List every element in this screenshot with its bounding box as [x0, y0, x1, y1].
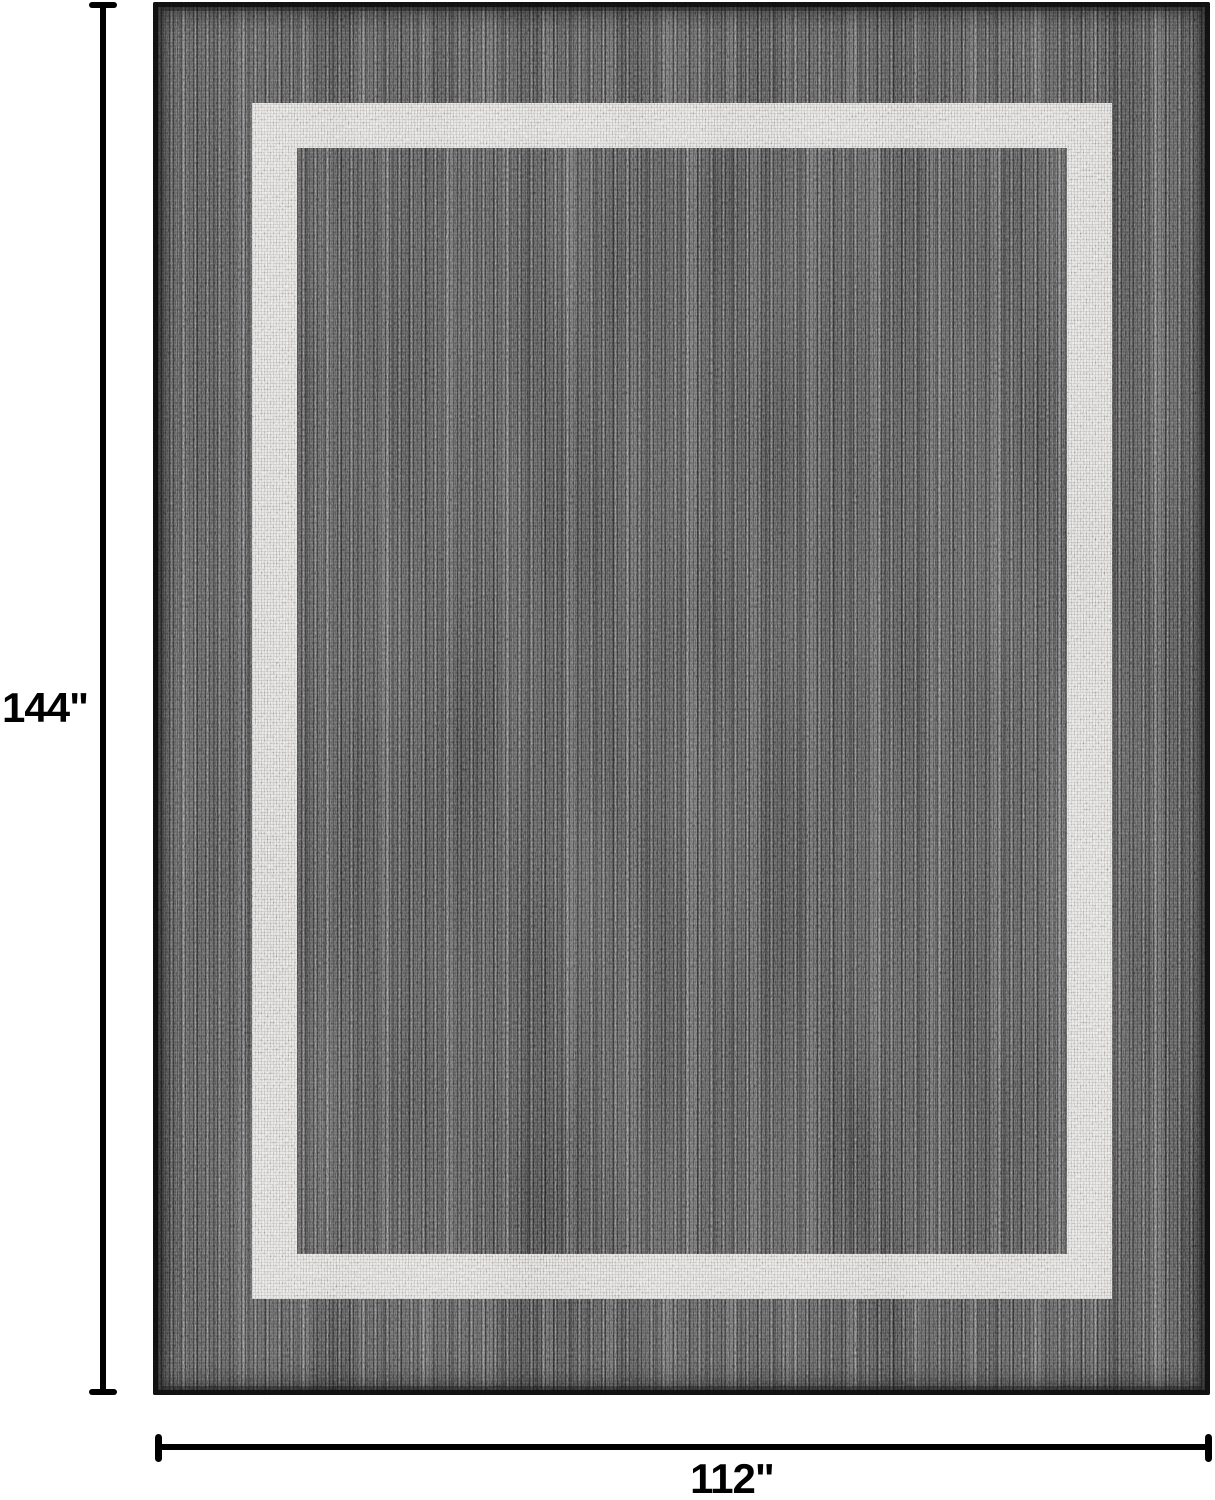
rug-inner-field: [297, 148, 1067, 1254]
height-dimension-label: 144": [0, 687, 88, 729]
height-dimension-cap-top: [89, 2, 117, 8]
height-dimension-line: [100, 3, 106, 1392]
width-dimension-cap-right: [1205, 1434, 1212, 1462]
width-dimension-label: 112": [582, 1458, 882, 1500]
rug-border-stripe: [252, 103, 1112, 1299]
width-dimension-cap-left: [155, 1434, 162, 1462]
product-dimension-image: 144" 112": [0, 0, 1215, 1500]
rug-photo: [153, 2, 1210, 1395]
width-dimension-line: [158, 1444, 1209, 1450]
height-dimension-cap-bottom: [89, 1389, 117, 1395]
